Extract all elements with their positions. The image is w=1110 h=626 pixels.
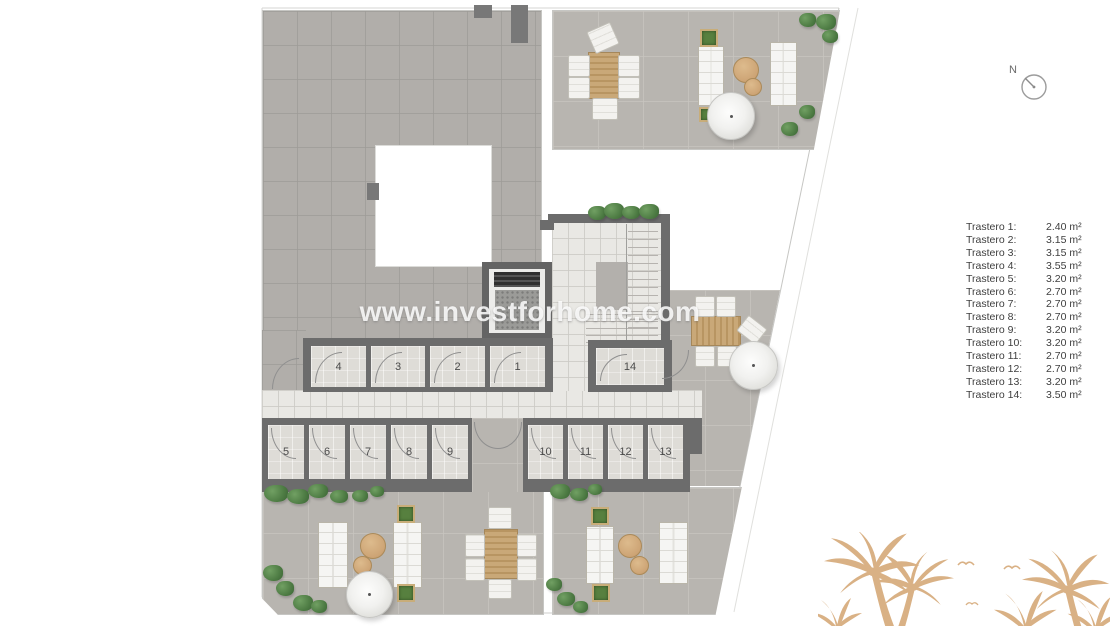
- bush: [264, 485, 288, 502]
- bush: [263, 565, 283, 581]
- roof-vent-block: [367, 183, 379, 200]
- legend-row: Trastero 7:2.70 m²: [966, 298, 1082, 311]
- legend-room-name: Trastero 3:: [966, 247, 1046, 260]
- wall-step: [688, 418, 702, 454]
- legend-room-name: Trastero 7:: [966, 298, 1046, 311]
- planter: [700, 29, 718, 47]
- storage-block-bottom-right: 10 11 12 13: [523, 418, 690, 492]
- room-number: 10: [528, 425, 563, 479]
- bush: [604, 203, 624, 219]
- chair: [488, 507, 512, 529]
- side-table: [360, 533, 386, 559]
- storage-room-14: 14: [596, 348, 664, 385]
- bush: [550, 484, 570, 499]
- floor-plan-canvas: 4 3 2 1 14 5 6 7: [0, 0, 1110, 626]
- bush: [781, 122, 798, 136]
- planter: [591, 507, 609, 525]
- chair: [517, 534, 537, 557]
- legend-room-area: 3.20 m²: [1046, 376, 1082, 389]
- legend-row: Trastero 12:2.70 m²: [966, 363, 1082, 376]
- legend-room-name: Trastero 6:: [966, 286, 1046, 299]
- patio-void: [375, 145, 492, 267]
- sun-lounger: [659, 522, 688, 584]
- legend-row: Trastero 10:3.20 m²: [966, 337, 1082, 350]
- side-table: [618, 534, 642, 558]
- watermark: www.investforhome.com: [250, 296, 810, 328]
- storage-room-10: 10: [528, 425, 563, 479]
- bush: [287, 489, 309, 504]
- sun-lounger: [318, 522, 348, 588]
- bush: [293, 595, 313, 611]
- elevator-doors: [494, 272, 540, 287]
- side-table: [630, 556, 649, 575]
- legend-room-name: Trastero 8:: [966, 311, 1046, 324]
- legend-room-area: 2.40 m²: [1046, 221, 1082, 234]
- bush: [330, 490, 348, 503]
- bush: [822, 30, 838, 43]
- side-table: [744, 78, 762, 96]
- legend-room-area: 2.70 m²: [1046, 350, 1082, 363]
- bush: [308, 484, 328, 498]
- bird-icon: [958, 562, 974, 565]
- legend-room-area: 3.15 m²: [1046, 247, 1082, 260]
- terrace-passage: [472, 418, 523, 492]
- legend-row: Trastero 1:2.40 m²: [966, 221, 1082, 234]
- legend-room-name: Trastero 9:: [966, 324, 1046, 337]
- legend-row: Trastero 13:3.20 m²: [966, 376, 1082, 389]
- storage-room-9: 9: [432, 425, 468, 479]
- legend-row: Trastero 5:3.20 m²: [966, 273, 1082, 286]
- dining-table: [588, 52, 620, 99]
- chair: [695, 346, 715, 367]
- planter: [397, 505, 415, 523]
- parasol: [707, 92, 755, 140]
- legend-room-name: Trastero 14:: [966, 389, 1046, 402]
- room-number: 3: [371, 346, 425, 387]
- storage-room-2: 2: [430, 346, 485, 387]
- storage-room-1: 1: [490, 346, 545, 387]
- storage-room-13: 13: [648, 425, 683, 479]
- bush: [557, 592, 575, 606]
- bush: [622, 206, 640, 219]
- planter: [397, 584, 415, 602]
- legend-room-name: Trastero 5:: [966, 273, 1046, 286]
- chair: [465, 534, 485, 557]
- legend-room-area: 3.20 m²: [1046, 337, 1082, 350]
- room-number: 7: [350, 425, 386, 479]
- room-number: 13: [648, 425, 683, 479]
- storage-room-12: 12: [608, 425, 643, 479]
- room-number: 11: [568, 425, 603, 479]
- bush: [276, 581, 294, 596]
- bush: [546, 578, 562, 591]
- storage-room-11: 11: [568, 425, 603, 479]
- chair: [568, 55, 590, 77]
- room-number: 8: [391, 425, 427, 479]
- legend-row: Trastero 14:3.50 m²: [966, 389, 1082, 402]
- legend-room-area: 2.70 m²: [1046, 298, 1082, 311]
- legend-room-name: Trastero 2:: [966, 234, 1046, 247]
- door-arc: [498, 422, 522, 449]
- room-number: 2: [430, 346, 485, 387]
- core-wall-stub: [540, 220, 554, 230]
- storage-room-5: 5: [268, 425, 304, 479]
- room-number: 5: [268, 425, 304, 479]
- room-number: 6: [309, 425, 345, 479]
- chair: [618, 55, 640, 77]
- bush: [588, 484, 602, 495]
- room-number: 9: [432, 425, 468, 479]
- sun-lounger: [586, 526, 614, 584]
- storage-block-14: 14: [588, 340, 672, 392]
- legend-room-area: 3.55 m²: [1046, 260, 1082, 273]
- sun-lounger: [770, 42, 797, 106]
- chair: [488, 579, 512, 599]
- parasol: [729, 341, 778, 390]
- legend-room-area: 3.20 m²: [1046, 324, 1082, 337]
- legend: Trastero 1:2.40 m² Trastero 2:3.15 m² Tr…: [966, 221, 1082, 402]
- legend-room-area: 3.50 m²: [1046, 389, 1082, 402]
- bush: [352, 490, 368, 502]
- legend-room-name: Trastero 12:: [966, 363, 1046, 376]
- sun-lounger: [393, 522, 422, 588]
- legend-room-name: Trastero 10:: [966, 337, 1046, 350]
- bird-icon: [1004, 566, 1020, 569]
- planter: [592, 584, 610, 602]
- bush: [311, 600, 327, 613]
- legend-room-name: Trastero 11:: [966, 350, 1046, 363]
- legend-room-name: Trastero 4:: [966, 260, 1046, 273]
- legend-room-name: Trastero 1:: [966, 221, 1046, 234]
- bush: [370, 486, 384, 497]
- bush: [799, 105, 815, 119]
- storage-room-6: 6: [309, 425, 345, 479]
- chair: [517, 558, 537, 581]
- chair: [592, 98, 618, 120]
- palm-trees-icon: [818, 532, 1110, 626]
- bush: [570, 488, 588, 501]
- legend-row: Trastero 2:3.15 m²: [966, 234, 1082, 247]
- bush: [799, 13, 816, 27]
- legend-row: Trastero 3:3.15 m²: [966, 247, 1082, 260]
- storage-block-top: 4 3 2 1: [303, 338, 553, 392]
- room-number: 14: [596, 348, 664, 385]
- legend-row: Trastero 8:2.70 m²: [966, 311, 1082, 324]
- parasol: [346, 571, 393, 618]
- storage-block-bottom-left: 5 6 7 8 9: [262, 418, 472, 492]
- legend-room-area: 2.70 m²: [1046, 363, 1082, 376]
- dining-table: [484, 529, 518, 579]
- storage-room-4: 4: [311, 346, 366, 387]
- legend-row: Trastero 6:2.70 m²: [966, 286, 1082, 299]
- bush: [573, 601, 588, 613]
- room-number: 4: [311, 346, 366, 387]
- room-number: 12: [608, 425, 643, 479]
- storage-room-3: 3: [371, 346, 425, 387]
- legend-room-area: 2.70 m²: [1046, 286, 1082, 299]
- legend-room-name: Trastero 13:: [966, 376, 1046, 389]
- bird-icon: [966, 603, 978, 605]
- bush: [639, 204, 659, 219]
- legend-row: Trastero 9:3.20 m²: [966, 324, 1082, 337]
- chair: [568, 77, 590, 99]
- bush: [816, 14, 836, 30]
- room-number: 1: [490, 346, 545, 387]
- corridor-stub: [552, 345, 590, 391]
- chimney-block-tall: [511, 5, 528, 43]
- chair: [465, 558, 485, 581]
- door-arc: [474, 422, 498, 449]
- legend-room-area: 3.15 m²: [1046, 234, 1082, 247]
- legend-row: Trastero 4:3.55 m²: [966, 260, 1082, 273]
- chair: [618, 77, 640, 99]
- corridor: [262, 390, 702, 420]
- legend-room-area: 3.20 m²: [1046, 273, 1082, 286]
- storage-room-7: 7: [350, 425, 386, 479]
- chimney-block-small: [474, 5, 492, 18]
- north-compass-icon: [1016, 70, 1056, 106]
- storage-room-8: 8: [391, 425, 427, 479]
- legend-room-area: 2.70 m²: [1046, 311, 1082, 324]
- legend-row: Trastero 11:2.70 m²: [966, 350, 1082, 363]
